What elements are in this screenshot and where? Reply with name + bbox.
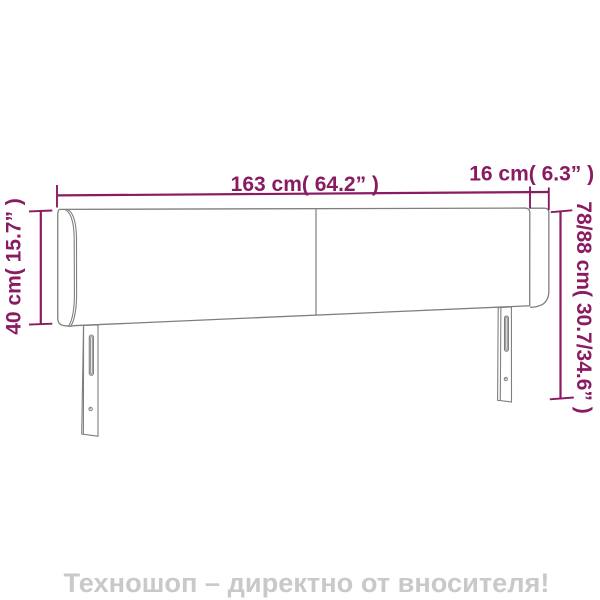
svg-text:16 cm( 6.3” ): 16 cm( 6.3” ) [469,162,594,185]
svg-text:78/88 cm( 30.7/34.6” ): 78/88 cm( 30.7/34.6” ) [572,201,595,413]
svg-text:40 cm( 15.7” ): 40 cm( 15.7” ) [3,198,26,335]
svg-text:163 cm( 64.2” ): 163 cm( 64.2” ) [231,173,379,196]
svg-text:Техношоп – директно от вносите: Техношоп – директно от вносителя! [64,567,550,598]
